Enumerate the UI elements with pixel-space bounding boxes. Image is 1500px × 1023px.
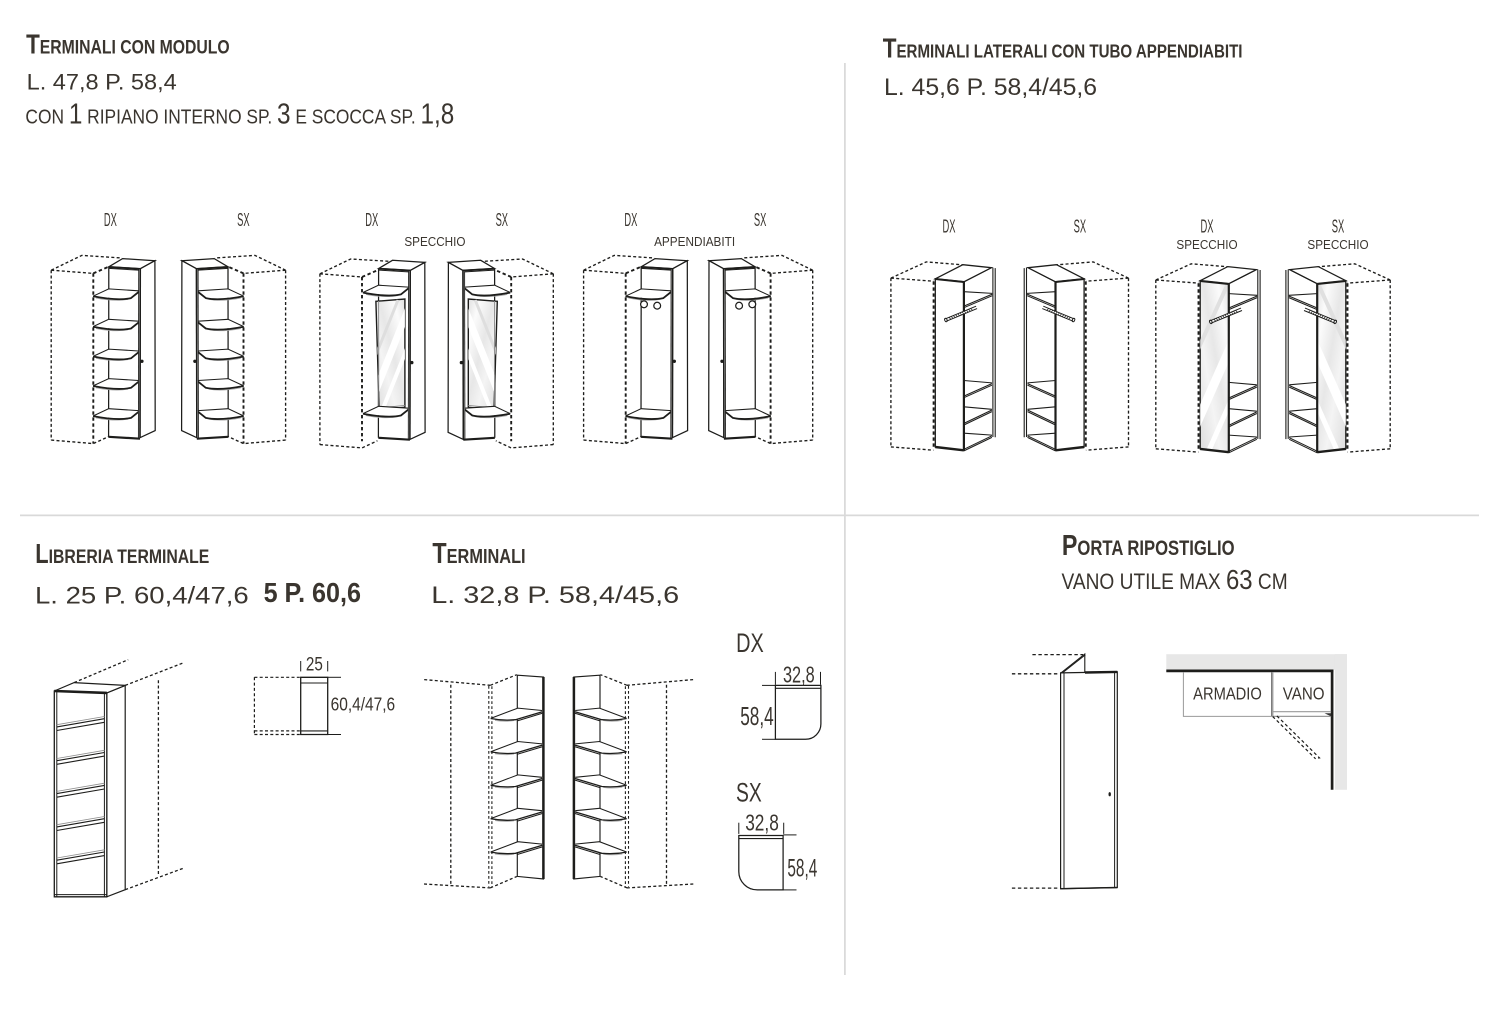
svg-text:58,4: 58,4 [740, 702, 773, 731]
svg-text:SPECCHIO: SPECCHIO [1307, 237, 1368, 252]
svg-text:SPECCHIO: SPECCHIO [1176, 237, 1237, 252]
svg-text:DX: DX [736, 628, 764, 657]
svg-text:5 P. 60,6: 5 P. 60,6 [264, 577, 361, 609]
svg-text:32,8: 32,8 [783, 663, 815, 688]
svg-text:SX: SX [237, 211, 250, 231]
svg-text:SX: SX [754, 211, 767, 231]
svg-text:L. 45,6 P. 58,4/45,6: L. 45,6 P. 58,4/45,6 [884, 74, 1097, 100]
svg-text:SX: SX [1074, 217, 1087, 237]
svg-text:DX: DX [104, 211, 117, 231]
svg-text:VANO: VANO [1283, 684, 1325, 704]
svg-text:25: 25 [306, 653, 323, 675]
svg-text:DX: DX [943, 217, 956, 237]
svg-text:ARMADIO: ARMADIO [1193, 684, 1262, 704]
svg-text:L. 47,8 P. 58,4: L. 47,8 P. 58,4 [27, 69, 177, 94]
svg-text:SPECCHIO: SPECCHIO [404, 234, 465, 249]
svg-text:SX: SX [1332, 217, 1345, 237]
svg-text:APPENDIABITI: APPENDIABITI [654, 234, 735, 249]
svg-text:32,8: 32,8 [745, 811, 779, 836]
svg-text:58,4: 58,4 [787, 855, 817, 883]
svg-text:DX: DX [365, 211, 378, 231]
svg-text:SX: SX [736, 777, 762, 807]
svg-text:SX: SX [496, 211, 509, 231]
svg-text:DX: DX [1201, 217, 1214, 237]
svg-text:L. 25 P. 60,4/47,6: L. 25 P. 60,4/47,6 [35, 583, 249, 609]
svg-text:DX: DX [624, 211, 637, 231]
svg-text:L. 32,8 P. 58,4/45,6: L. 32,8 P. 58,4/45,6 [431, 581, 679, 608]
svg-text:60,4/47,6: 60,4/47,6 [331, 694, 396, 714]
